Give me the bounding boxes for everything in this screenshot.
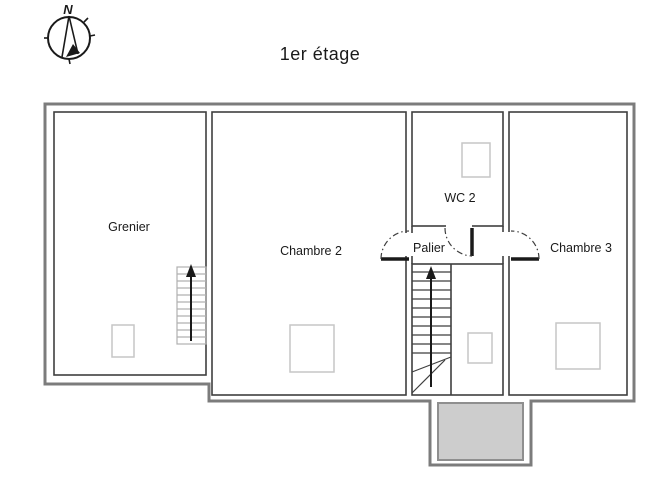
window-wc2 bbox=[462, 143, 490, 177]
compass-north-label: N bbox=[63, 2, 73, 17]
room-label-chambre2: Chambre 2 bbox=[280, 244, 342, 258]
outer-wall bbox=[45, 104, 634, 465]
window-chambre3 bbox=[556, 323, 600, 369]
window-grenier bbox=[112, 325, 134, 357]
room-label-wc2: WC 2 bbox=[444, 191, 475, 205]
floor-plan: N bbox=[0, 0, 667, 500]
doorway-gap-wc2 bbox=[446, 223, 472, 229]
room-label-grenier: Grenier bbox=[108, 220, 150, 234]
porch bbox=[438, 403, 523, 460]
floor-plan-page: 1er étage N bbox=[0, 0, 667, 500]
floor-title: 1er étage bbox=[0, 44, 640, 65]
doorway-gap-chambre3 bbox=[501, 232, 511, 256]
room-label-chambre3: Chambre 3 bbox=[550, 241, 612, 255]
room-label-palier: Palier bbox=[413, 241, 445, 255]
window-stairhall bbox=[468, 333, 492, 363]
window-chambre2 bbox=[290, 325, 334, 372]
